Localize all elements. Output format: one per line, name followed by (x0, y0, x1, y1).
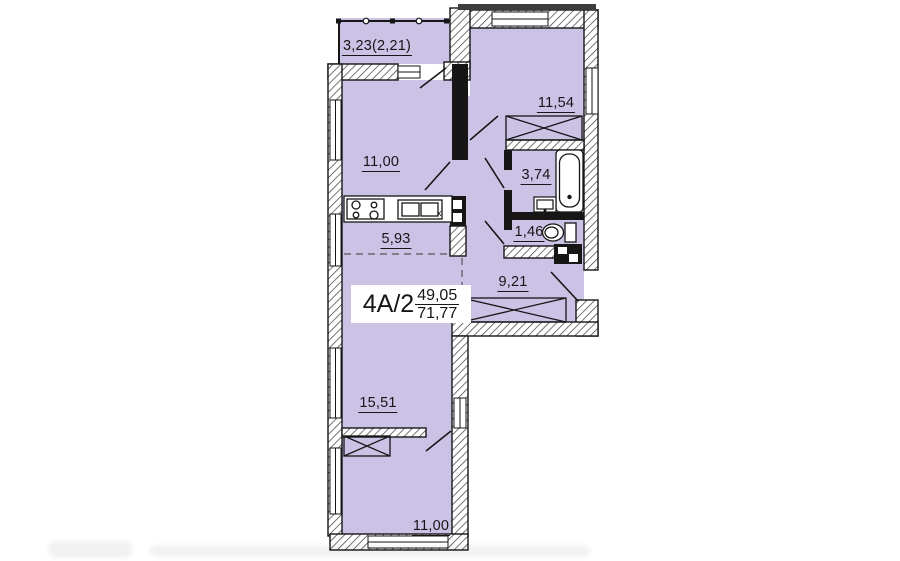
apartment-label: 4А/2 49,05 71,77 (351, 285, 471, 323)
label-living-room-area: 15,51 (358, 395, 397, 413)
apartment-living-area: 49,05 (415, 287, 459, 305)
toilet-icon (543, 223, 577, 242)
bathtub-icon (556, 150, 583, 212)
washbasin-icon (534, 197, 556, 212)
label-room-left-area: 11,00 (362, 154, 400, 172)
counter-mark: x (437, 208, 442, 218)
stove-icon (347, 199, 384, 219)
label-wc-area: 1,46 (513, 224, 544, 242)
label-balcony-area: 3,23(2,21) (342, 38, 412, 56)
exterior-face-line (458, 4, 596, 10)
label-kitchen-area: 5,93 (380, 231, 411, 249)
kitchen-unit: x (344, 196, 452, 222)
label-hallway-area: 9,21 (497, 274, 528, 292)
floor-plan-canvas: x 3,23(2,21) 11,54 11,00 5,93 3,74 1,46 … (0, 0, 900, 561)
label-bathroom-area: 3,74 (520, 167, 551, 185)
apartment-areas-fraction: 49,05 71,77 (415, 287, 459, 322)
vent-shaft-wc (554, 244, 582, 264)
label-bedroom-top-area: 11,54 (537, 95, 575, 113)
watermark-logo (48, 541, 133, 558)
apartment-type: 4А/2 (363, 292, 414, 317)
floor-plan-drawing: x (0, 0, 900, 561)
apartment-total-area: 71,77 (415, 305, 459, 322)
kitchen-sink-icon (398, 200, 442, 219)
watermark-text (150, 545, 590, 557)
label-bedroom-bottom-area: 11,00 (412, 518, 450, 536)
